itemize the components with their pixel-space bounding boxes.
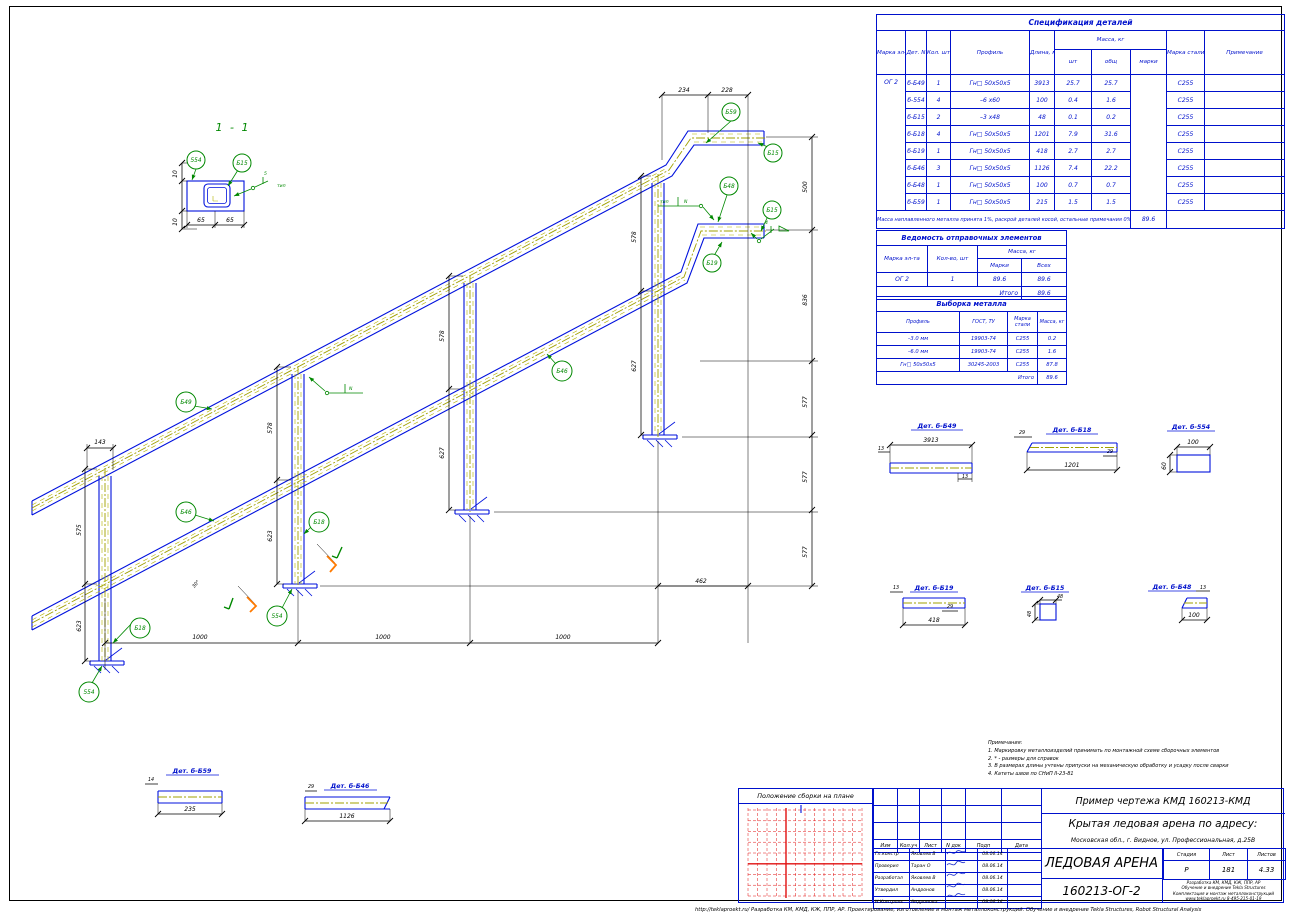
weld-note: тип xyxy=(277,184,286,189)
drawing-name: ЛЕДОВАЯ АРЕНА xyxy=(1041,849,1163,879)
document-number: 160213-ОГ-2 xyxy=(1041,879,1163,902)
col-header: Марка эл-та xyxy=(877,246,928,273)
dim-label: 234 xyxy=(678,87,690,94)
object-name: Крытая ледовая арена по адресу: xyxy=(1041,814,1285,834)
dim-label: 462 xyxy=(695,578,707,585)
dim-label: 1126 xyxy=(339,813,354,820)
metal-table: Выборка металла ПрофильГОСТ, ТУМарка ста… xyxy=(876,296,1067,385)
col-header: Кол. шт xyxy=(927,31,951,75)
title-block: Положение сборки на плане Изм Кол.уч Лис… xyxy=(738,788,1284,903)
dim-label: 578 xyxy=(439,330,446,342)
dim-label: 575 xyxy=(76,524,83,536)
stage-sheet-table: СтадияЛистЛистов Р1814.33 xyxy=(1163,848,1286,880)
col-header: Масса, кг xyxy=(1038,312,1067,333)
table-row: б-Б152–3 х48480.10.2С255 xyxy=(877,109,1285,126)
dim-label: 578 xyxy=(631,231,638,243)
mass-marks-cell xyxy=(1131,75,1167,211)
dim-label: 48 xyxy=(1057,594,1063,600)
company-info: Разработка КМ, КМД, КЖ, ППР, АР Обучение… xyxy=(1163,879,1284,902)
leader-line xyxy=(195,515,214,521)
balloon-label: 554 xyxy=(190,158,201,164)
dim-label: 29 xyxy=(1107,449,1113,455)
signature-cell xyxy=(946,885,978,897)
signature-table: Гл.констрЯковлев В08.06.14 ПроверилТаран… xyxy=(873,848,1042,909)
total-label: Итого xyxy=(877,372,1038,385)
dim-label: 10 xyxy=(172,170,179,178)
dim-label: 578 xyxy=(267,422,274,434)
col-header: Масса, кг xyxy=(978,246,1067,259)
col-header: Кол-во, шт xyxy=(928,246,978,273)
notes-title: Примечания: xyxy=(988,740,1288,748)
detail-title: Дет. б-Б19 xyxy=(914,584,954,592)
section-cut-marks xyxy=(224,544,342,612)
col-header: ГОСТ, ТУ xyxy=(960,312,1008,333)
leader-line xyxy=(706,121,731,143)
leader-line xyxy=(228,170,238,186)
centerlines xyxy=(32,138,766,663)
weld-size: N xyxy=(349,386,353,392)
note-line: 3. В размерах длины учтены припуски на м… xyxy=(988,763,1288,771)
balloon-label: Б15 xyxy=(236,161,248,167)
section-1-1: 1 - 1 10 10 65 65 554 Б15 5 тип xyxy=(172,121,286,232)
dim-label: 577 xyxy=(802,471,809,483)
balloon-label: Б19 xyxy=(706,261,718,267)
signature-row: РазработалЯковлев В08.06.14 xyxy=(874,873,1042,885)
col-header: Длина, мм xyxy=(1030,31,1055,75)
col-header: шт xyxy=(1055,50,1092,75)
col-header: Профиль xyxy=(951,31,1030,75)
detail-title: Дет. б-Б48 xyxy=(1152,583,1192,591)
notes-block: Примечания: 1. Маркировку металлоизделий… xyxy=(988,740,1288,779)
leader-line xyxy=(715,242,722,254)
dim-label: 13 xyxy=(893,585,899,591)
dim-label: 29 xyxy=(947,604,953,610)
spec-note: Масса наплавленного металла принята 1%, … xyxy=(877,211,1131,229)
dim-label: 418 xyxy=(928,617,940,624)
weld-symbol: 5 тип xyxy=(234,171,286,196)
balloon-label: Б18 xyxy=(134,626,146,632)
signature-row: ПроверилТаран О08.06.14 xyxy=(874,861,1042,873)
object-cell: Крытая ледовая арена по адресу: Московск… xyxy=(1041,814,1285,849)
dim-label: 13 xyxy=(1200,585,1206,591)
handrail-isometric-view: 234 228 500 836 577 577 577 1000 1000 10… xyxy=(32,87,818,702)
col-header: Марки xyxy=(978,259,1022,273)
col-header: Марка эл-та xyxy=(877,31,906,75)
balloon-label: Б46 xyxy=(556,369,568,375)
dim-label: 500 xyxy=(802,181,809,193)
balloon-label: Б48 xyxy=(723,184,735,190)
signature-cell xyxy=(946,873,978,885)
spec-title: Спецификация деталей xyxy=(877,15,1285,31)
detail-title: Дет. б-Б18 xyxy=(1052,426,1092,434)
dim-label: 100 xyxy=(1188,612,1200,619)
balloon-label: Б49 xyxy=(180,400,192,406)
dim-label: 627 xyxy=(439,447,446,459)
weld-symbol: тип N xyxy=(658,197,714,220)
dim-label: 627 xyxy=(631,360,638,372)
sheets-header: Листов xyxy=(1248,849,1286,861)
signature-row: Гл.констрЯковлев В08.06.14 xyxy=(874,849,1042,861)
dim-label: 29 xyxy=(308,784,314,790)
dim-label: 577 xyxy=(802,546,809,558)
signature-row: УтвердилАндронов08.06.14 xyxy=(874,885,1042,897)
weld-size: 4 xyxy=(765,220,768,226)
shipping-table: Ведомость отправочных элементов Марка эл… xyxy=(876,230,1067,300)
weld-size: N xyxy=(684,199,688,205)
metal-title: Выборка металла xyxy=(877,297,1067,312)
spec-total: 89.6 xyxy=(1131,211,1167,229)
table-row: ОГ 2189.689.6 xyxy=(877,273,1067,287)
company-line: www.teklaproekt.ru 8-495-215-01-19 xyxy=(1163,896,1284,901)
spec-footer-row: Масса наплавленного металла принята 1%, … xyxy=(877,211,1285,229)
table-row: Итого89.6 xyxy=(877,372,1067,385)
balloon-label: Б18 xyxy=(313,520,325,526)
dimension-lines xyxy=(85,95,812,661)
balloon-label: Б15 xyxy=(767,151,779,157)
footer-credit-line: http://teklaproekt.ru/ Разработка КМ, КМ… xyxy=(695,907,1289,913)
drawing-sheet: 234 228 500 836 577 577 577 1000 1000 10… xyxy=(0,0,1292,923)
dim-label: 10 xyxy=(172,218,179,226)
table-row: –6.0 мм19903-74С2551.6 xyxy=(877,346,1067,359)
dim-label: 65 xyxy=(197,217,205,224)
note-line: 4. Катеты швов по СНиП II-23-81 xyxy=(988,771,1288,779)
dim-label: 836 xyxy=(802,294,809,306)
table-row: б-5544–6 х601000.41.6С255 xyxy=(877,92,1285,109)
weld-note: тип xyxy=(660,200,669,205)
table-row: б-Б191Гн□ 50х50х54182.72.7С255 xyxy=(877,143,1285,160)
detail-title: Дет. б-Б59 xyxy=(172,767,212,775)
dim-label: 1000 xyxy=(192,634,207,641)
leader-line xyxy=(547,354,556,364)
col-header: марки xyxy=(1131,50,1167,75)
dim-label: 3913 xyxy=(923,437,938,444)
detail-title: Дет. б-Б15 xyxy=(1025,584,1065,592)
weld-symbol: N xyxy=(309,377,363,395)
col-header: Всех xyxy=(1022,259,1067,273)
stage-header: Стадия xyxy=(1164,849,1210,861)
dim-label: 29 xyxy=(1019,430,1025,436)
balloon-label: 554 xyxy=(271,614,282,620)
note-line: 1. Маркировку металлоизделий принимать п… xyxy=(988,748,1288,756)
leader-line xyxy=(718,195,727,222)
shipping-title: Ведомость отправочных элементов xyxy=(877,231,1067,246)
tube-wall-dashes xyxy=(32,134,764,661)
col-header: Примечание xyxy=(1205,31,1285,75)
dim-label: 60 xyxy=(1161,462,1168,470)
spec-table: Спецификация деталей Марка эл-та Дет. N … xyxy=(876,14,1285,229)
dim-label: 1000 xyxy=(555,634,570,641)
col-header: Дет. N xyxy=(906,31,927,75)
table-row: б-Б481Гн□ 50х50х51000.70.7С255 xyxy=(877,177,1285,194)
dim-label: 143 xyxy=(94,439,106,446)
dim-label: 65 xyxy=(226,217,234,224)
col-header: общ xyxy=(1092,50,1131,75)
dim-label: 100 xyxy=(1187,439,1199,446)
plan-location-label: Положение сборки на плане xyxy=(739,789,873,804)
project-code-title: Пример чертежа КМД 160213-КМД xyxy=(1041,789,1285,814)
company-line: Обучение и внедрение Tekla Structures xyxy=(1163,885,1284,890)
balloon-label: Б46 xyxy=(180,510,192,516)
sheets-value: 4.33 xyxy=(1248,861,1286,880)
signature-cell xyxy=(946,861,978,873)
table-row: ОГ 2 б-Б491Гн□ 50х50х5391325.725.7 С255 xyxy=(877,75,1285,92)
stage-value: Р xyxy=(1164,861,1210,880)
dim-label: 228 xyxy=(721,87,733,94)
rails xyxy=(32,131,764,630)
part-balloons: Б59 Б15 Б48 Б15 Б19 Б49 Б46 Б18 Б18 554 … xyxy=(79,103,782,702)
dim-label: 13 xyxy=(962,474,968,480)
detail-title: Дет. б-554 xyxy=(1171,423,1210,431)
leader-line xyxy=(192,169,196,180)
total-value: 89.6 xyxy=(1038,372,1067,385)
plan-location-area xyxy=(739,804,873,902)
leader-line xyxy=(304,527,311,534)
tube-mark xyxy=(213,196,220,201)
sheet-value: 181 xyxy=(1210,861,1248,880)
col-header: Марка стали xyxy=(1167,31,1205,75)
table-row: б-Б591Гн□ 50х50х52151.51.5С255 xyxy=(877,194,1285,211)
dim-label: 623 xyxy=(267,530,274,542)
dim-label: 14 xyxy=(148,777,154,783)
leader-line xyxy=(282,589,292,608)
revision-grid: Изм Кол.уч Лист N док Подп Дата xyxy=(873,788,1042,853)
section-title: 1 - 1 xyxy=(216,121,251,134)
signature-cell xyxy=(946,849,978,861)
object-address: Московская обл., г. Видное, ул. Професси… xyxy=(1041,834,1285,846)
balloon-label: Б59 xyxy=(725,110,737,116)
note-line: 2. * - размеры для справок xyxy=(988,756,1288,764)
dim-label: 577 xyxy=(802,396,809,408)
table-row: –3.0 мм19903-74С2550.2 xyxy=(877,333,1067,346)
detail-title: Дет. б-Б49 xyxy=(917,422,957,430)
dim-label: 235 xyxy=(184,806,196,813)
col-header: Масса, кг xyxy=(1055,31,1167,50)
detail-title: Дет. б-Б46 xyxy=(330,782,370,790)
angle-label: 30° xyxy=(191,579,201,589)
table-row: б-Б463Гн□ 50х50х511267.422.2С255 xyxy=(877,160,1285,177)
dim-label: 13 xyxy=(878,446,884,452)
dim-label: 1201 xyxy=(1064,462,1079,469)
sheet-header: Лист xyxy=(1210,849,1248,861)
balloon-label: Б15 xyxy=(766,208,778,214)
weld-size: 5 xyxy=(264,171,267,177)
col-header: Марка стали xyxy=(1008,312,1038,333)
table-row: Гн□ 50х50х530245-2003С25587.8 xyxy=(877,359,1067,372)
dim-label: 623 xyxy=(76,620,83,632)
dim-label: 48 xyxy=(1027,611,1033,617)
dim-label: 1000 xyxy=(375,634,390,641)
table-row: б-Б184Гн□ 50х50х512017.931.6С255 xyxy=(877,126,1285,143)
col-header: Профиль xyxy=(877,312,960,333)
balloon-label: 554 xyxy=(83,690,94,696)
